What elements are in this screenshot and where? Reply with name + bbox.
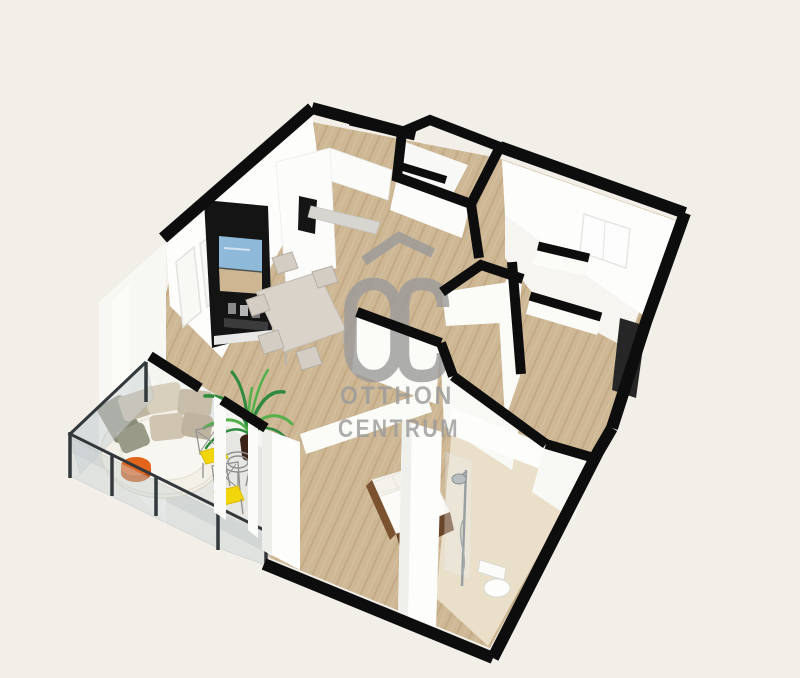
- bedroom-west-pillar-shade: [262, 428, 272, 554]
- balcony-door-pillar-1: [214, 396, 226, 520]
- balcony-door-pillar-2: [248, 416, 258, 538]
- floorplan-3d-render: OTTHON CENTRUM: [0, 0, 800, 678]
- watermark-line-otthon: OTTHON: [340, 382, 454, 410]
- tv-screen-sky: [219, 236, 262, 272]
- watermark-line-centrum: CENTRUM: [338, 415, 460, 443]
- shower-glass: [444, 452, 472, 580]
- floorplan-canvas: OTTHON CENTRUM: [0, 0, 800, 678]
